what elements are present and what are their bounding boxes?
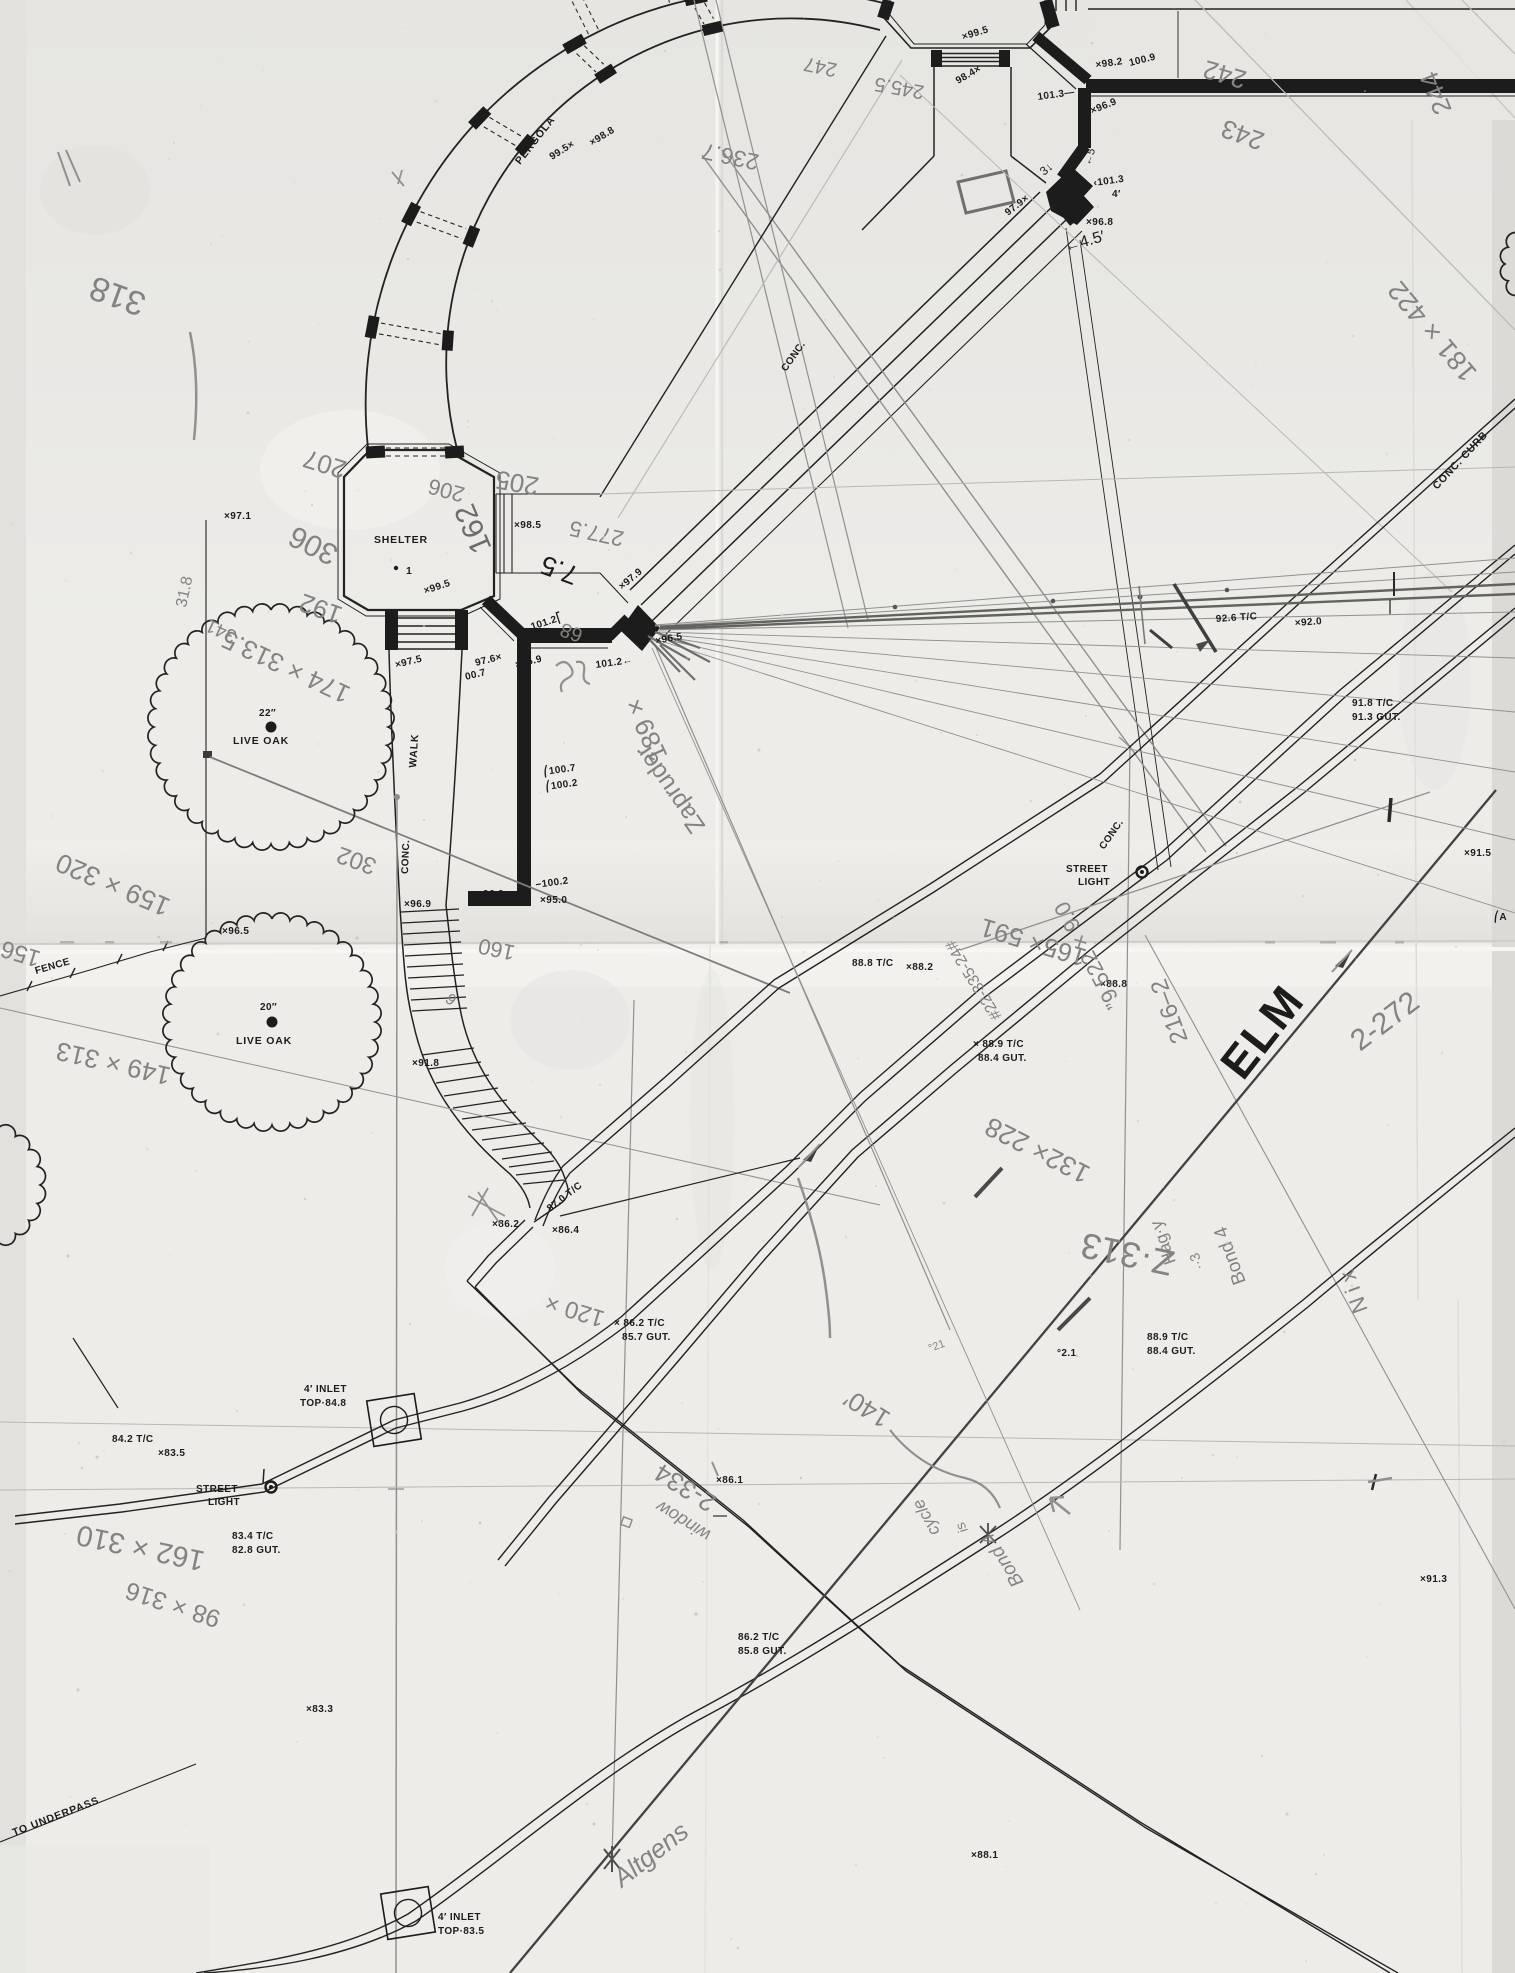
svg-text:91.3 GUT.: 91.3 GUT. [1352, 712, 1401, 723]
svg-text:4′ INLET: 4′ INLET [304, 1384, 347, 1395]
svg-text:84.2 T/C: 84.2 T/C [112, 1434, 154, 1445]
svg-text:88.8 T/C: 88.8 T/C [852, 958, 894, 969]
svg-text:96.9×: 96.9× [483, 889, 510, 900]
svg-text:4′: 4′ [1112, 189, 1121, 200]
svg-text:4′ INLET: 4′ INLET [438, 1912, 481, 1923]
svg-text:×86.4: ×86.4 [552, 1225, 579, 1236]
svg-text:×91.3: ×91.3 [1420, 1574, 1447, 1585]
svg-text:82.8 GUT.: 82.8 GUT. [232, 1545, 281, 1556]
svg-text:LIGHT: LIGHT [1078, 877, 1110, 888]
svg-text:×86.2: ×86.2 [492, 1219, 519, 1230]
svg-text:STREET: STREET [1066, 864, 1108, 875]
svg-text:×92.0: ×92.0 [1294, 616, 1322, 629]
svg-text:LIGHT: LIGHT [208, 1497, 240, 1508]
svg-text:×88.1: ×88.1 [971, 1850, 998, 1861]
svg-text:88.9 T/C: 88.9 T/C [1147, 1332, 1189, 1343]
svg-text:85.7 GUT.: 85.7 GUT. [622, 1332, 671, 1343]
svg-text:×91.8: ×91.8 [412, 1058, 439, 1069]
svg-text:×98.5: ×98.5 [514, 520, 541, 531]
svg-text:×96.8: ×96.8 [1086, 217, 1113, 228]
svg-text:86.2 T/C: 86.2 T/C [738, 1632, 780, 1643]
svg-text:STREET: STREET [196, 1484, 238, 1495]
svg-text:LIVE OAK: LIVE OAK [236, 1035, 292, 1047]
svg-text:×83.3: ×83.3 [306, 1704, 333, 1715]
svg-text:88.4 GUT.: 88.4 GUT. [1147, 1346, 1196, 1357]
svg-text:× 86.2 T/C: × 86.2 T/C [614, 1318, 665, 1329]
svg-text:85.8 GUT.: 85.8 GUT. [738, 1646, 787, 1657]
svg-text:SHELTER: SHELTER [374, 534, 428, 546]
svg-text:×97.1: ×97.1 [224, 511, 251, 522]
svg-text:×83.5: ×83.5 [158, 1448, 185, 1459]
svg-text:× 88.9 T/C: × 88.9 T/C [973, 1039, 1024, 1050]
svg-text:×95.0: ×95.0 [540, 895, 567, 906]
svg-text:WALK: WALK [407, 733, 421, 768]
svg-text:LIVE OAK: LIVE OAK [233, 735, 289, 747]
svg-text:×96.9: ×96.9 [404, 899, 431, 910]
svg-text:20″: 20″ [260, 1002, 277, 1013]
svg-text:CONC.: CONC. [400, 840, 412, 875]
svg-text:TOP·83.5: TOP·83.5 [438, 1926, 484, 1937]
svg-text:×91.5: ×91.5 [1464, 848, 1491, 859]
svg-text:×86.1: ×86.1 [716, 1475, 743, 1486]
svg-text:⎛A: ⎛A [1494, 910, 1507, 923]
svg-text:1: 1 [406, 565, 413, 577]
svg-text:83.4 T/C: 83.4 T/C [232, 1531, 274, 1542]
svg-text:×96.5: ×96.5 [222, 926, 249, 937]
svg-text:88.4 GUT.: 88.4 GUT. [978, 1053, 1027, 1064]
svg-text:TOP·84.8: TOP·84.8 [300, 1398, 346, 1409]
svg-text:91.8 T/C: 91.8 T/C [1352, 698, 1394, 709]
svg-text:22″: 22″ [259, 708, 276, 719]
svg-text:×88.2: ×88.2 [906, 962, 933, 973]
svg-text:°2.1: °2.1 [1057, 1348, 1077, 1359]
